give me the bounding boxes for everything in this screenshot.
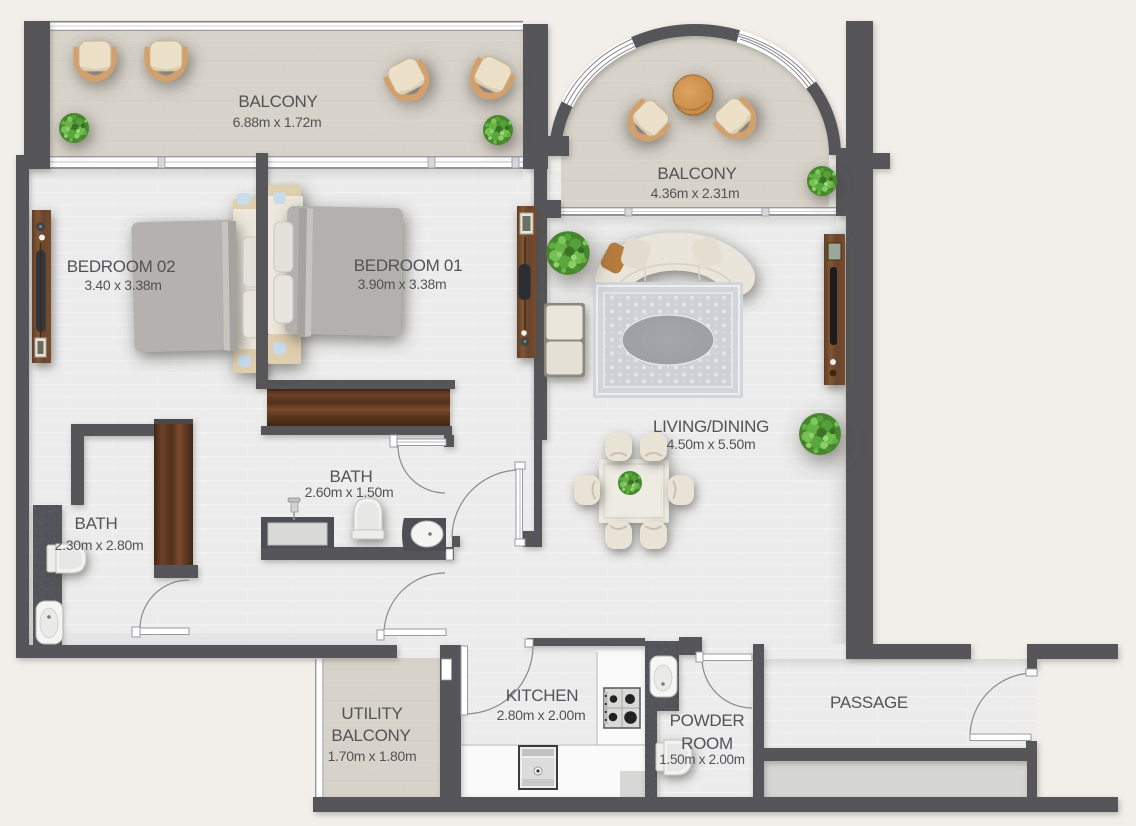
svg-text:POWDER: POWDER [670, 711, 745, 730]
svg-text:2.60m x 1.50m: 2.60m x 1.50m [305, 484, 394, 500]
svg-text:2.80m x 2.00m: 2.80m x 2.00m [497, 707, 586, 723]
svg-text:BATH: BATH [75, 514, 118, 533]
svg-text:2.30m x 2.80m: 2.30m x 2.80m [55, 537, 144, 553]
svg-text:1.50m x 2.00m: 1.50m x 2.00m [659, 752, 744, 767]
svg-text:BALCONY: BALCONY [657, 164, 736, 183]
svg-text:6.88m x 1.72m: 6.88m x 1.72m [233, 114, 322, 130]
svg-text:3.90m x 3.38m: 3.90m x 3.38m [358, 276, 447, 292]
svg-text:BALCONY: BALCONY [331, 726, 410, 745]
svg-text:4.50m x 5.50m: 4.50m x 5.50m [667, 436, 756, 452]
svg-text:LIVING/DINING: LIVING/DINING [653, 417, 769, 436]
svg-text:PASSAGE: PASSAGE [830, 693, 908, 712]
svg-text:ROOM: ROOM [681, 734, 733, 753]
svg-text:KITCHEN: KITCHEN [506, 686, 579, 705]
svg-text:BEDROOM 01: BEDROOM 01 [354, 256, 462, 275]
svg-text:UTILITY: UTILITY [341, 704, 402, 723]
svg-text:BALCONY: BALCONY [238, 92, 317, 111]
svg-text:BEDROOM 02: BEDROOM 02 [67, 257, 175, 276]
svg-text:1.70m x 1.80m: 1.70m x 1.80m [328, 748, 417, 764]
svg-text:3.40 x 3.38m: 3.40 x 3.38m [84, 277, 161, 293]
svg-text:4.36m x 2.31m: 4.36m x 2.31m [651, 185, 740, 201]
